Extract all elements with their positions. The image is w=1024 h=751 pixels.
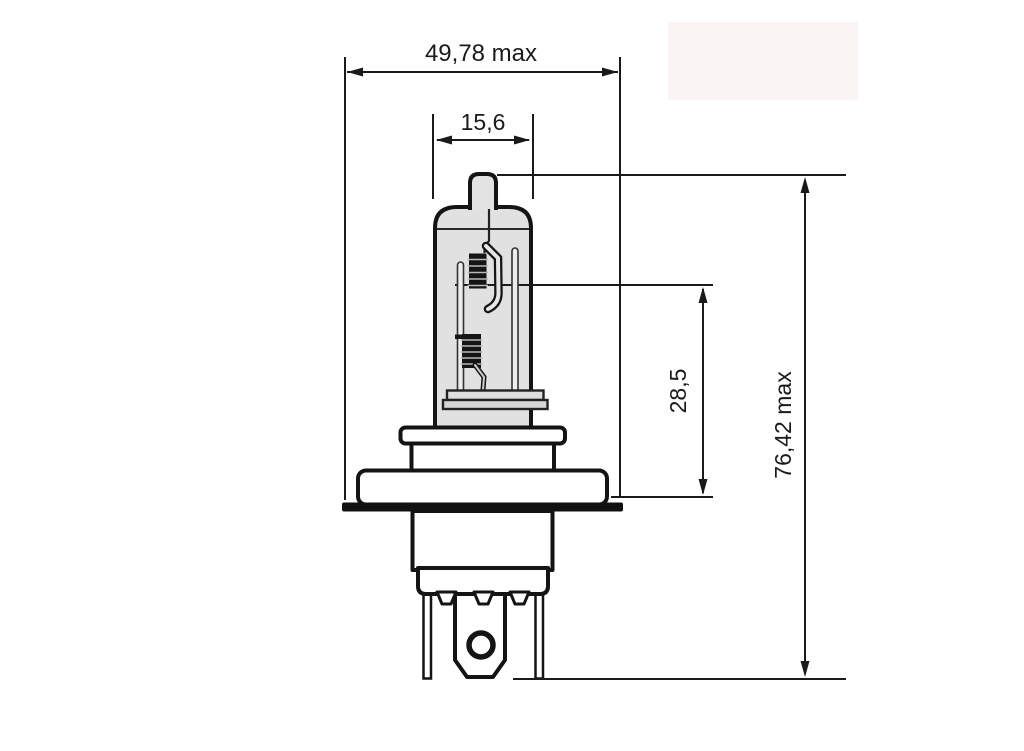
- arrowhead-right: [602, 68, 618, 77]
- dim-filament-height: 28,5: [611, 287, 713, 497]
- collar-ring: [401, 428, 566, 444]
- pin-right: [536, 585, 544, 679]
- arrowhead-top: [801, 177, 810, 193]
- technical-drawing-canvas: 49,78 max 15,6 28,5 76,42 max: [0, 0, 1024, 751]
- h4-bulb-dimensional-drawing: 49,78 max 15,6 28,5 76,42 max: [0, 0, 1024, 751]
- pin-center-hole: [469, 633, 493, 657]
- pin-slot-center: [474, 592, 493, 604]
- support-wire-right: [512, 248, 518, 393]
- bulb-tip: [470, 174, 496, 210]
- dim-overall-length: 76,42 max: [770, 177, 810, 677]
- overall-length-label: 76,42 max: [770, 371, 796, 479]
- mounting-flange: [358, 471, 607, 505]
- arrowhead-left: [347, 68, 363, 77]
- base-skirt: [418, 568, 548, 594]
- glass-diameter-label: 15,6: [461, 109, 506, 135]
- watermark-block: [668, 22, 858, 100]
- arrowhead-top: [699, 287, 708, 303]
- pin-slot-right: [510, 592, 529, 604]
- arrowhead-right: [514, 136, 530, 145]
- low-beam-filament: [468, 254, 489, 289]
- arrowhead-left: [436, 136, 452, 145]
- filament-height-label: 28,5: [665, 369, 691, 414]
- arrowhead-bottom: [801, 661, 810, 677]
- pinch-platform-lower: [443, 400, 548, 409]
- support-wire-left: [458, 262, 464, 392]
- pinch-platform-upper: [447, 391, 544, 401]
- bulb: [342, 174, 713, 679]
- pin-slot-left: [437, 592, 456, 604]
- arrowhead-bottom: [699, 479, 708, 495]
- pin-left: [424, 585, 432, 679]
- overall-width-label: 49,78 max: [425, 40, 537, 67]
- base-neck: [412, 442, 555, 472]
- base-body: [413, 511, 553, 570]
